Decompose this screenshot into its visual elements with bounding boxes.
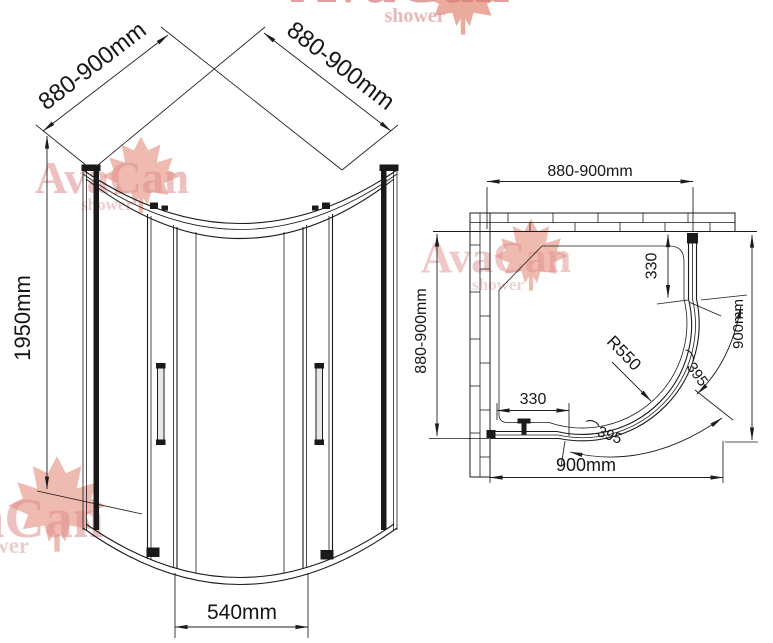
right-wall-profile bbox=[380, 165, 399, 531]
plan-width-dim-top: 880-900mm bbox=[547, 163, 632, 180]
front-entry-width-dim: 540mm bbox=[207, 601, 277, 624]
plan-depth-dim-left: 880-900mm bbox=[413, 288, 430, 373]
plan-fixed-bottom-dim: 330 bbox=[520, 391, 547, 408]
watermark-sub-text: shower bbox=[0, 533, 29, 558]
front-height-dim: 1950mm bbox=[10, 275, 35, 361]
left-wall-profile bbox=[82, 165, 101, 531]
plan-fixed-right-dim: 330 bbox=[644, 253, 661, 280]
plan-width-dim-bottom: 900mm bbox=[556, 455, 616, 475]
front-width-dim-right: 880-900mm bbox=[282, 16, 400, 115]
glass-panel-edges bbox=[148, 214, 333, 573]
plan-arc-dim-upper: ⌒395 bbox=[674, 347, 711, 390]
plan-radius-dim: R550 bbox=[603, 332, 645, 374]
watermark-sub-text: shower bbox=[384, 5, 445, 27]
watermark-top: AvaCan shower bbox=[290, 0, 509, 35]
watermark-sub-text: shower bbox=[81, 195, 133, 214]
watermark-bottom-left: AvaCan shower bbox=[0, 456, 106, 558]
door-handle-right bbox=[315, 363, 325, 445]
top-wall bbox=[470, 213, 735, 232]
door-rollers bbox=[147, 203, 334, 560]
plan-view: 880-900mm 880-900mm 900mm 900mm 330 330 … bbox=[413, 163, 758, 483]
bottom-rail bbox=[83, 524, 397, 585]
watermark-left: AvaCan shower bbox=[35, 137, 189, 214]
shower-enclosure-technical-drawing: AvaCan shower AvaCan shower AvaCan showe… bbox=[0, 0, 773, 643]
front-width-dim-left: 880-900mm bbox=[33, 16, 151, 115]
door-handle-left bbox=[156, 363, 166, 445]
plan-depth-dim-right: 900mm bbox=[730, 299, 747, 349]
watermark-plan: AvaCan shower bbox=[421, 219, 572, 294]
